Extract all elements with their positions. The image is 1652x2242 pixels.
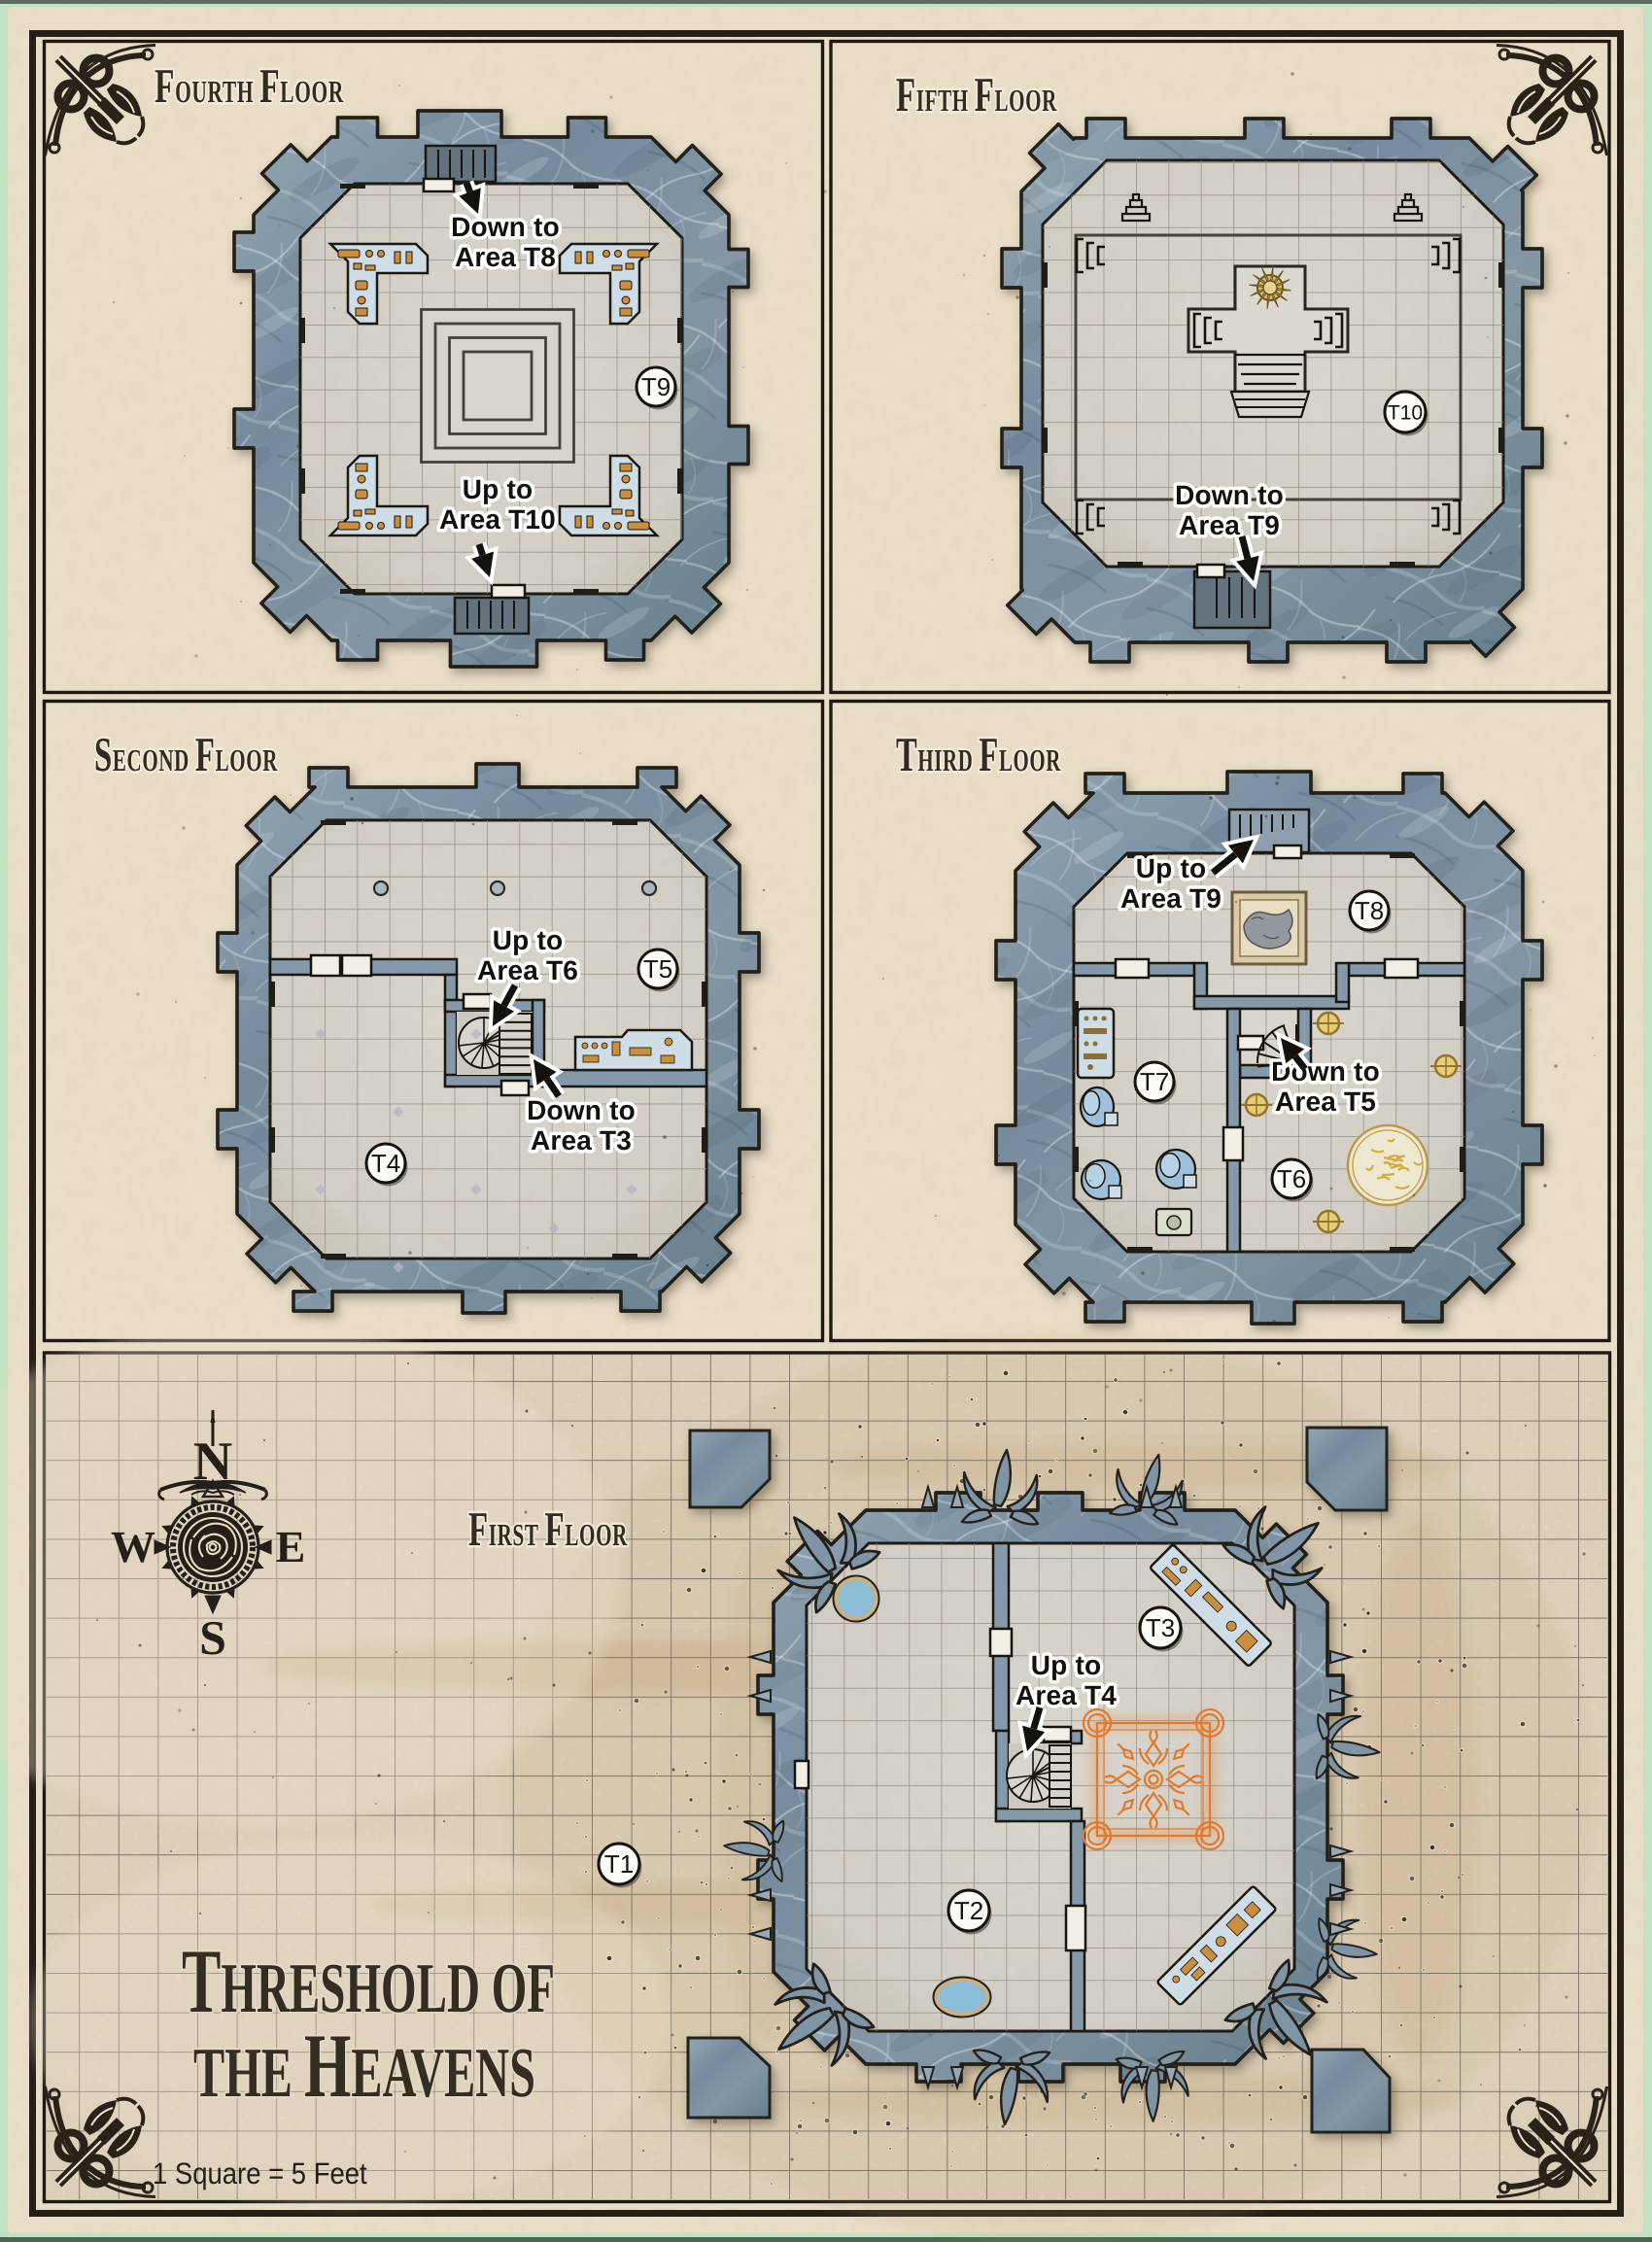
svg-text:Down toArea T3: Down toArea T3 [527, 1095, 636, 1155]
svg-text:Down toArea T8: Down toArea T8 [451, 212, 560, 272]
svg-text:T3: T3 [1146, 1613, 1175, 1642]
svg-text:T1: T1 [604, 1849, 634, 1879]
svg-text:T9: T9 [641, 372, 671, 401]
svg-text:Down toArea T9: Down toArea T9 [1175, 480, 1284, 540]
svg-text:T4: T4 [371, 1149, 400, 1178]
svg-text:T8: T8 [1355, 896, 1384, 925]
svg-text:T5: T5 [643, 954, 672, 983]
svg-text:T2: T2 [954, 1896, 983, 1925]
svg-text:T6: T6 [1277, 1164, 1306, 1193]
svg-text:W: W [111, 1522, 155, 1571]
svg-text:S: S [199, 1610, 226, 1665]
svg-text:T7: T7 [1140, 1067, 1169, 1096]
svg-text:T10: T10 [1388, 401, 1423, 424]
svg-text:N: N [193, 1431, 232, 1492]
svg-text:E: E [276, 1522, 306, 1571]
svg-text:1 Square = 5 Feet: 1 Square = 5 Feet [153, 2156, 367, 2190]
